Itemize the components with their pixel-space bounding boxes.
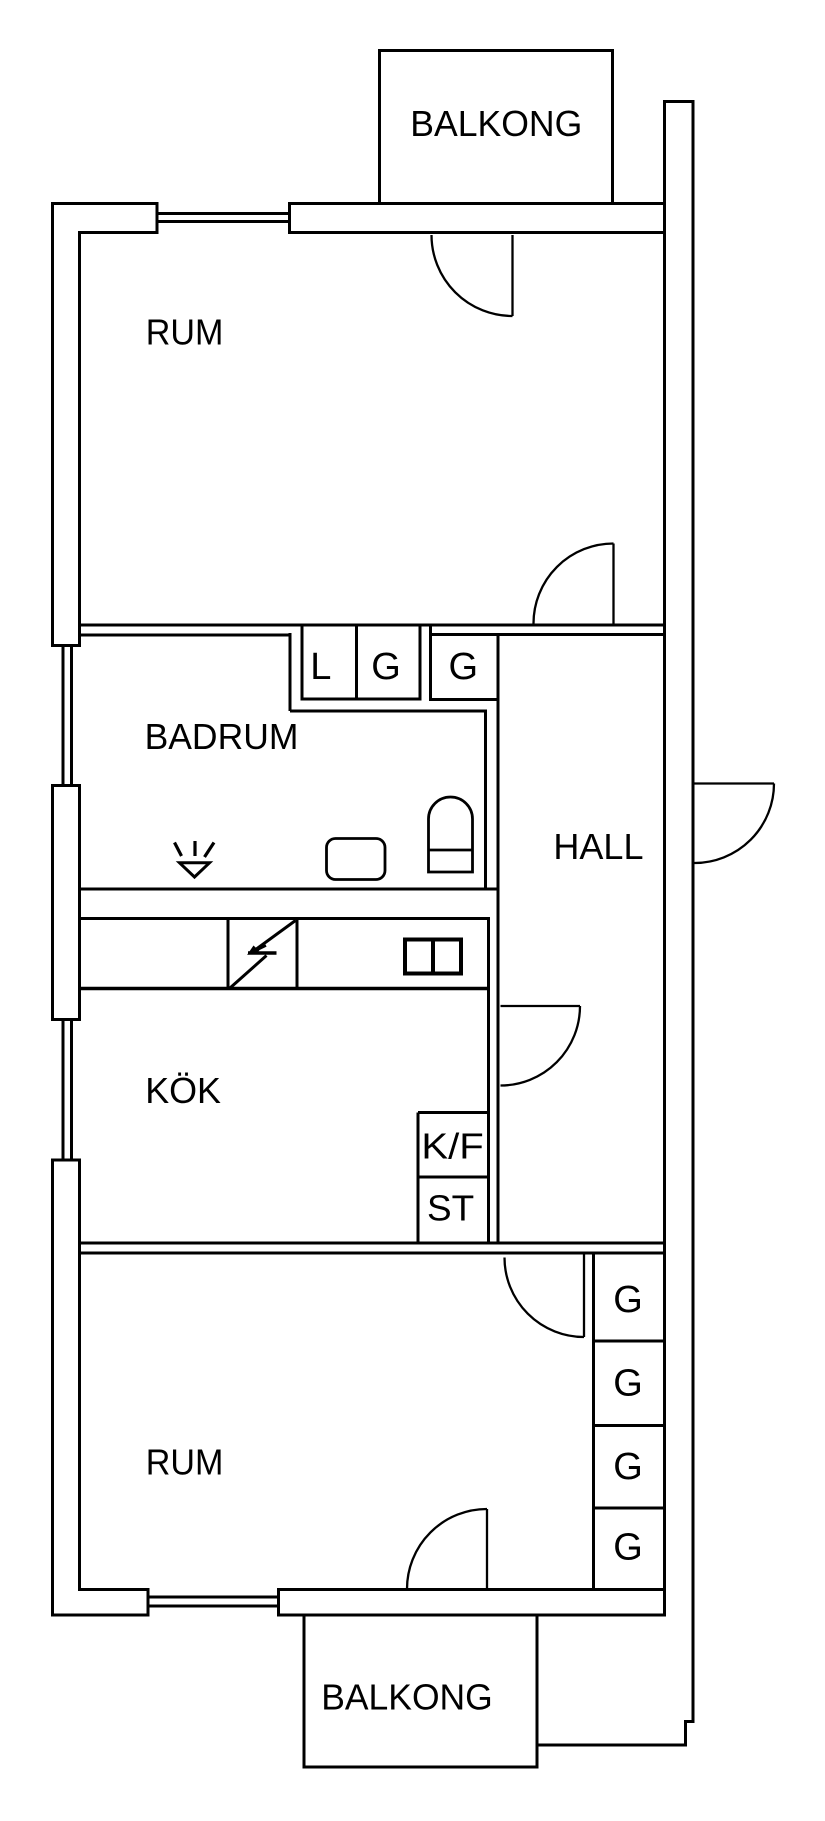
svg-text:KÖK: KÖK (145, 1070, 221, 1111)
svg-text:BADRUM: BADRUM (145, 716, 299, 757)
svg-text:ST: ST (427, 1188, 474, 1229)
svg-text:L: L (310, 646, 331, 688)
svg-text:K/F: K/F (421, 1125, 483, 1166)
svg-text:RUM: RUM (146, 1442, 224, 1483)
svg-text:BALKONG: BALKONG (321, 1677, 493, 1718)
svg-text:G: G (371, 646, 401, 688)
svg-text:G: G (613, 1363, 643, 1405)
svg-text:G: G (613, 1279, 643, 1321)
svg-text:G: G (613, 1446, 643, 1488)
svg-text:G: G (449, 646, 479, 688)
svg-text:RUM: RUM (146, 312, 224, 353)
svg-text:G: G (613, 1527, 643, 1569)
svg-text:BALKONG: BALKONG (410, 103, 582, 144)
svg-text:HALL: HALL (553, 826, 643, 867)
